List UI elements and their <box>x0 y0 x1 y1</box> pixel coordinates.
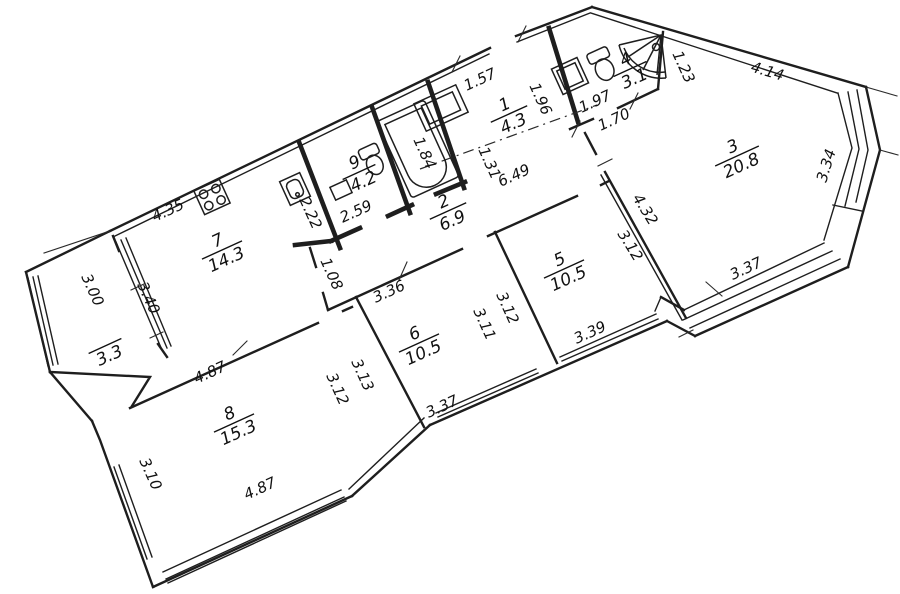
svg-text:20.8: 20.8 <box>720 149 763 183</box>
stove-icon <box>194 179 230 214</box>
dim-3.40: 3.40 <box>133 279 163 317</box>
overhang-line-topleft <box>44 231 110 253</box>
adjacent-line-right <box>880 150 898 155</box>
svg-text:15.3: 15.3 <box>217 416 260 450</box>
dim-3.10: 3.10 <box>135 455 165 493</box>
tick <box>598 159 612 166</box>
toilet-icon-room4 <box>586 46 619 84</box>
dim-3.36: 3.36 <box>370 276 408 306</box>
wall-room8-bottom-outer <box>153 496 352 587</box>
dim-4.87-bottom: 4.87 <box>241 473 279 503</box>
room3-window-glass1 <box>690 259 840 328</box>
balcony-top-wall <box>26 231 110 272</box>
dim-2.59: 2.59 <box>337 196 375 226</box>
floor-plan-canvas: 1 4.3 2 6.9 3 20.8 4 3.1 5 10.5 6 10.5 <box>0 0 900 594</box>
rooms5-window-cap <box>655 297 661 311</box>
dim-3.12-diag: 3.12 <box>614 226 647 264</box>
dim-4.35: 4.35 <box>149 195 187 225</box>
dim-1.08: 1.08 <box>316 255 346 293</box>
room-label-1: 1 4.3 <box>483 88 536 142</box>
fixtures <box>194 35 666 215</box>
room-label-6: 6 10.5 <box>391 316 448 372</box>
rooms56-window-glass1 <box>438 319 658 417</box>
room-label-7: 7 14.3 <box>194 223 251 279</box>
room-labels: 1 4.3 2 6.9 3 20.8 4 3.1 5 10.5 6 10.5 <box>89 43 768 451</box>
svg-text:10.5: 10.5 <box>547 262 590 296</box>
tick <box>706 282 722 296</box>
dim-3.37-room3: 3.37 <box>727 253 765 284</box>
wall-stub-room3 <box>585 133 596 154</box>
dim-3.12-w68: 3.12 <box>322 370 352 408</box>
wall-room3-bottom-outer <box>695 267 848 336</box>
wall-room8-top <box>130 307 352 408</box>
svg-text:14.3: 14.3 <box>205 243 248 277</box>
dim-4.87-top: 4.87 <box>191 357 229 387</box>
rooms56-window-glass2 <box>436 314 656 413</box>
cabinet-icon <box>414 85 468 131</box>
svg-text:10.5: 10.5 <box>402 336 445 370</box>
tick <box>572 121 580 137</box>
dim-1.96: 1.96 <box>525 80 555 118</box>
dim-3.34: 3.34 <box>813 147 840 184</box>
wall-angled-left <box>50 372 92 421</box>
wall-room8-bump-inner <box>349 418 424 489</box>
floor-plan-page: 1 4.3 2 6.9 3 20.8 4 3.1 5 10.5 6 10.5 <box>0 0 900 594</box>
dim-3.00: 3.00 <box>77 271 107 309</box>
dim-1.57: 1.57 <box>461 64 499 94</box>
adjacent-line-topright <box>866 87 897 96</box>
room-label-2: 2 6.9 <box>422 185 475 239</box>
balcony-window-glass <box>28 276 58 366</box>
room-label-3: 3 20.8 <box>707 128 768 185</box>
room-label-4: 4 3.1 <box>605 43 655 95</box>
room-label-balcony: 3.3 <box>89 339 130 373</box>
dim-1.23: 1.23 <box>668 48 698 86</box>
adjacent-lines <box>44 87 898 253</box>
dim-3.13: 3.13 <box>347 356 377 394</box>
wall-room8-bump <box>352 425 430 496</box>
right-window-cap <box>833 205 862 211</box>
room-label-8: 8 15.3 <box>206 396 263 452</box>
dim-3.37-room6: 3.37 <box>423 391 461 421</box>
tick <box>233 341 247 355</box>
dim-3.12-w56: 3.12 <box>492 289 522 327</box>
svg-text:3.3: 3.3 <box>93 341 126 370</box>
dim-1.70: 1.70 <box>595 104 633 134</box>
dim-3.11: 3.11 <box>469 305 499 343</box>
room-label-5: 5 10.5 <box>536 242 593 298</box>
